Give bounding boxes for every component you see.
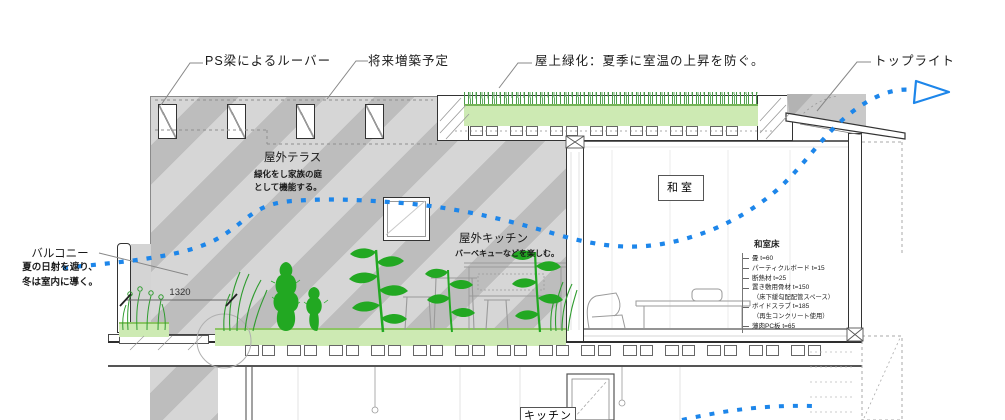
floor-spec-item: 薄肉PC板 t=65 [743,322,882,332]
balcony-title: バルコニー [6,245,114,261]
floor-spec-title: 和室床 [754,238,882,250]
terrace-window [383,197,430,241]
balcony-note-line: 冬は室内に導く。 [6,276,114,291]
floor-spec-item: パーティクルボード t=15 [743,264,882,274]
annotation-louver: PS梁によるルーバー [205,50,331,69]
washitsu-left-wall [566,140,584,346]
floor-spec-item: 断熱材 t=25 [743,274,882,284]
dimension-1320: 1320 [134,287,226,298]
section-drawing: PS梁によるルーバー 将来増築予定 屋上緑化：夏季に室温の上昇を防ぐ。 トップラ… [0,0,1005,420]
washitsu-furniture [587,289,750,328]
room-label-washitsu: 和室 [658,175,704,201]
outdoor-kitchen-note-line: バーベキューなどを楽しむ。 [455,248,559,260]
annotation-balcony: バルコニー 夏の日射を遮り、 冬は室内に導く。 [6,245,114,290]
parapet-right [757,95,794,141]
floor-spec-item: （再生コンクリート使用） [753,312,882,321]
airflow-path-bottom [682,406,812,420]
terrace-note-line: 緑化をし家族の庭 [254,168,322,181]
roof-void-slab-pattern [470,126,738,136]
louver-block [158,104,177,139]
annotation-toplight: トップライト [874,50,955,69]
balcony-note-line: 夏の日射を遮り、 [6,261,114,276]
louver-block [296,104,315,139]
void-slab-pattern [245,345,821,356]
room-label-kitchen: キッチン [520,407,576,420]
outdoor-kitchen-title: 屋外キッチン [459,230,559,246]
annotation-future-extension: 将来増築予定 [368,50,449,69]
toplight-structure [786,94,905,139]
floor-spec-item: 置き敷用骨材 t=150 [743,283,882,293]
terrace-title: 屋外テラス [264,149,322,165]
airflow-arrow-icon [914,81,949,103]
floor-spec-item: 畳 t=60 [743,254,882,264]
floor-spec-items: 畳 t=60 パーティクルボード t=15 断熱材 t=25 置き敷用骨材 t=… [742,253,882,333]
balcony-rail [117,243,131,333]
terrace-ground-green [215,328,566,346]
louver-block [227,104,246,139]
planter-green [119,322,169,337]
annotation-terrace: 屋外テラス 緑化をし家族の庭 として機能する。 [254,149,322,194]
terrace-note-line: として機能する。 [254,181,322,194]
louver-block [365,104,384,139]
kitchen-level-lines [246,367,680,420]
annotation-green-roof: 屋上緑化：夏季に室温の上昇を防ぐ。 [535,50,765,69]
green-roof-strip [464,104,758,126]
annotation-outdoor-kitchen: 屋外キッチン バーベキューなどを楽しむ。 [455,230,559,260]
floor-spec-list: 和室床 畳 t=60 パーティクルボード t=15 断熱材 t=25 置き敷用骨… [742,238,882,333]
floor-spec-item: （床下緩勾配配管スペース） [753,293,882,302]
floor-spec-item: ボイドスラブ t=185 [743,302,882,312]
